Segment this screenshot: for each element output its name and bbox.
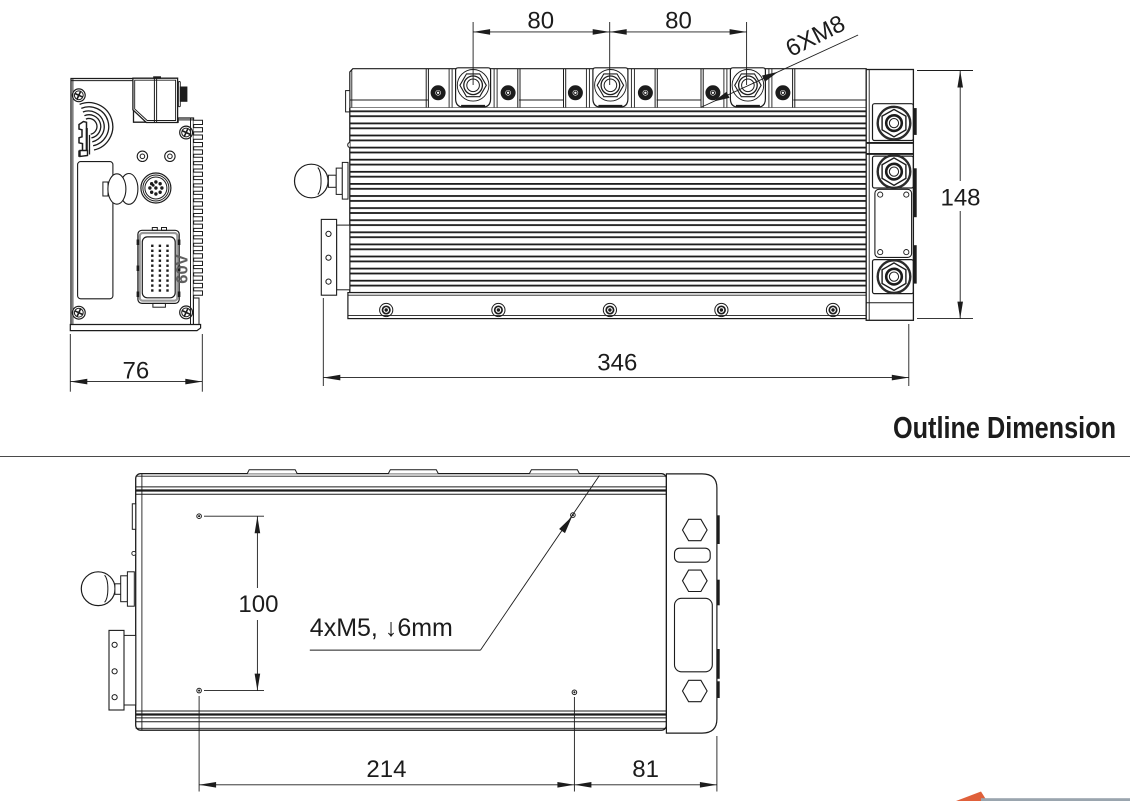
svg-text:80: 80 bbox=[665, 8, 692, 35]
svg-text:Outline Dimension: Outline Dimension bbox=[893, 410, 1116, 445]
svg-text:214: 214 bbox=[366, 756, 406, 783]
svg-text:4xM5, ↓6mm: 4xM5, ↓6mm bbox=[310, 614, 453, 642]
svg-text:60V: 60V bbox=[173, 254, 191, 283]
svg-text:81: 81 bbox=[632, 756, 659, 783]
svg-text:100: 100 bbox=[238, 591, 278, 618]
svg-text:346: 346 bbox=[597, 350, 637, 377]
svg-text:76: 76 bbox=[123, 358, 150, 385]
svg-text:80: 80 bbox=[527, 8, 554, 35]
svg-text:148: 148 bbox=[940, 184, 980, 211]
